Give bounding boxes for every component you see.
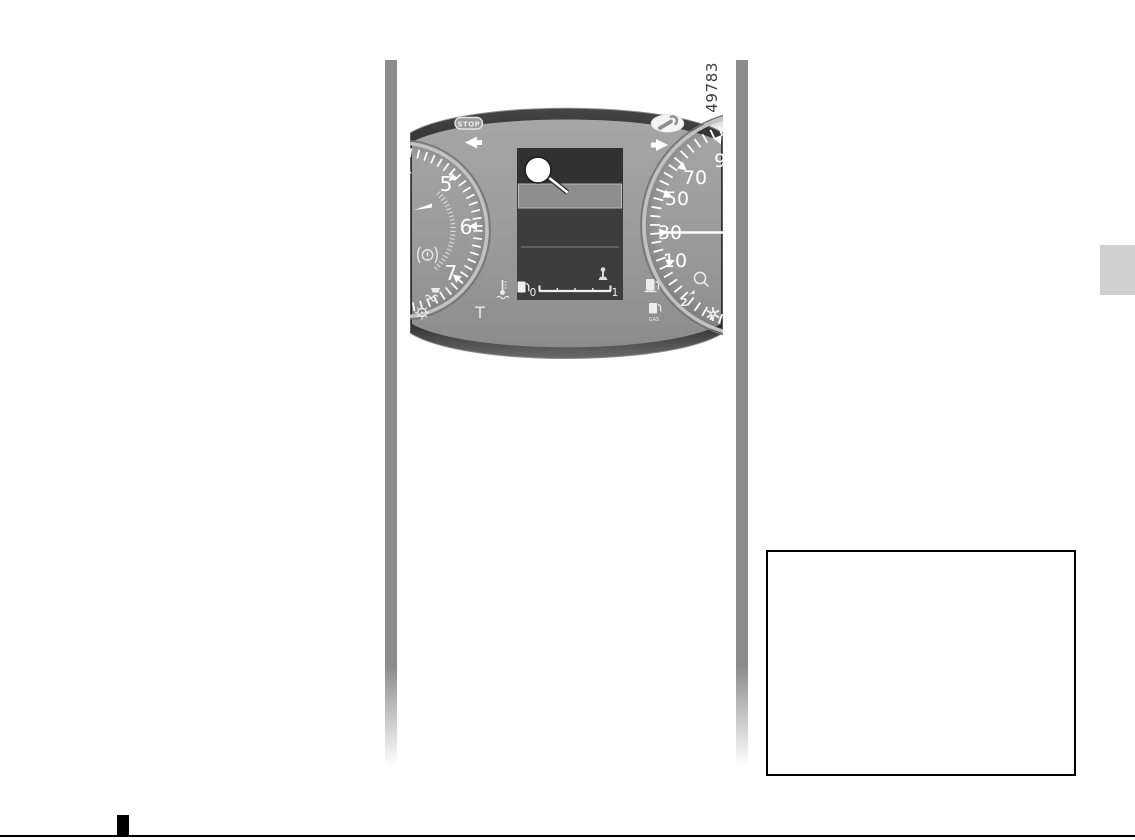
footer-rule [0, 835, 1135, 837]
t-label: T [474, 303, 485, 322]
page-margin-bar-left [385, 60, 397, 766]
speed-number-70: 70 [683, 167, 707, 189]
stop-badge-label: STOP [457, 119, 480, 128]
empty-note-box [766, 550, 1076, 776]
fuel-min-label: 0 [530, 287, 537, 299]
gas-label: GAS [649, 317, 659, 323]
stop-badge: STOP [455, 118, 483, 130]
display-highlight-band [519, 184, 622, 208]
light-warning-icon [415, 306, 429, 320]
tach-number-7: 7 [445, 261, 458, 285]
footer-chapter-marker [117, 815, 129, 836]
tach-number-6: 6 [460, 215, 473, 239]
speed-number-10: 10 [663, 250, 687, 272]
tach-number-5: 5 [440, 172, 453, 196]
speed-number-90: 9 [714, 150, 723, 172]
svg-text:​2: ​2 [680, 296, 688, 309]
speed-number-50: 50 [665, 188, 689, 210]
chapter-side-tab [1100, 245, 1135, 295]
instrument-cluster-illustration: 4 5 6 7 [410, 95, 723, 370]
page-margin-bar-right [736, 60, 748, 766]
tach-number-4: 4 [410, 158, 412, 182]
fuel-max-label: 1 [612, 287, 619, 299]
service-wrench-icon [651, 115, 684, 133]
